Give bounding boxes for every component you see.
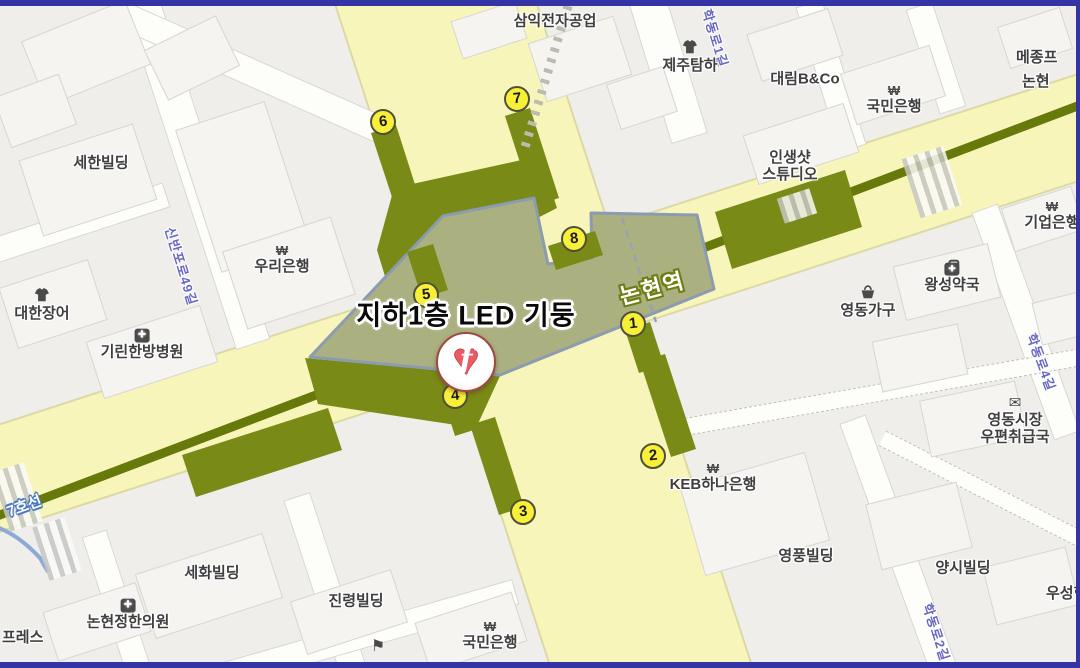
restaurant-icon xyxy=(14,287,69,304)
map-canvas[interactable]: 신반포로49길 학동로1길 학동로4길 학동로2길 삼익전자공업 제주탐하 대림… xyxy=(0,0,1080,668)
poi-sehan-building: 세한빌딩 xyxy=(73,156,128,173)
flag-icon: ⚑ xyxy=(371,639,385,657)
pharmacy-icon: ✚ xyxy=(944,263,959,276)
frame-top xyxy=(0,0,1080,6)
poi-keb-hana-bank: ₩ KEB하나은행 xyxy=(670,462,757,494)
poi-ibk-bank: ₩ 기업은행 xyxy=(1024,200,1079,232)
bank-won-icon: ₩ xyxy=(1024,200,1079,213)
marker-f-glyph: ƒ xyxy=(460,342,473,377)
exit-1[interactable]: 1 xyxy=(620,311,646,337)
bank-won-icon: ₩ xyxy=(866,84,921,97)
poi-maison-p: 메종프 xyxy=(1016,50,1057,67)
poi-jinryeong-building: 진령빌딩 xyxy=(328,594,383,611)
place-marker[interactable]: ♥ ƒ xyxy=(436,332,496,392)
bank-won-icon: ₩ xyxy=(462,620,517,633)
poi-daerim-bco: 대림B&Co xyxy=(770,72,839,89)
poi-useong-partial: 우성항 xyxy=(1046,586,1080,603)
hospital-cross-icon: ✚ xyxy=(135,329,150,343)
poi-nonhyeon-partial: 논현 xyxy=(1022,74,1050,91)
poi-nonhyeon-clinic: ✚ 논현정한의원 xyxy=(87,597,170,632)
poi-kookmin-bank-top: ₩ 국민은행 xyxy=(866,84,921,116)
clinic-cross-icon: ✚ xyxy=(121,599,136,613)
poi-yeongdong-post: ✉ 영동시장 우편취급국 xyxy=(980,396,1049,447)
poi-samik-electronics: 삼익전자공업 xyxy=(514,14,597,31)
poi-press-partial: 프레스 xyxy=(2,630,43,647)
poi-sehwa-building: 세화빌딩 xyxy=(184,566,239,583)
bank-won-icon: ₩ xyxy=(254,244,309,257)
poi-kookmin-bank-bottom: ₩ 국민은행 xyxy=(462,620,517,652)
poi-girin-hospital: ✚ 기린한방병원 xyxy=(101,327,184,362)
poi-daehan-eel: 대한장어 xyxy=(14,287,69,323)
poi-wangseong-pharmacy: ✚ 왕성약국 xyxy=(924,260,979,295)
post-office-icon: ✉ xyxy=(980,396,1049,411)
exit-7[interactable]: 7 xyxy=(504,86,530,112)
frame-bottom xyxy=(0,662,1080,668)
poi-yeongpung-building: 영풍빌딩 xyxy=(778,549,833,566)
bank-won-icon: ₩ xyxy=(670,462,757,475)
poi-jeju-restaurant: 제주탐하 xyxy=(662,39,717,75)
frame-right xyxy=(1076,0,1080,668)
poi-woori-bank: ₩ 우리은행 xyxy=(254,244,309,276)
poi-insaengshot-studio: 인생샷 스튜디오 xyxy=(762,150,817,184)
furniture-basket-icon xyxy=(840,284,895,301)
poi-yeongdong-furniture: 영동가구 xyxy=(840,284,895,320)
exit-2[interactable]: 2 xyxy=(640,443,666,469)
callout-label: 지하1층 LED 기둥 xyxy=(356,294,575,333)
exit-8[interactable]: 8 xyxy=(561,226,587,252)
exit-6[interactable]: 6 xyxy=(370,109,396,135)
poi-yangsi-building: 양시빌딩 xyxy=(935,561,990,578)
exit-3[interactable]: 3 xyxy=(510,499,536,525)
restaurant-icon xyxy=(662,39,717,56)
